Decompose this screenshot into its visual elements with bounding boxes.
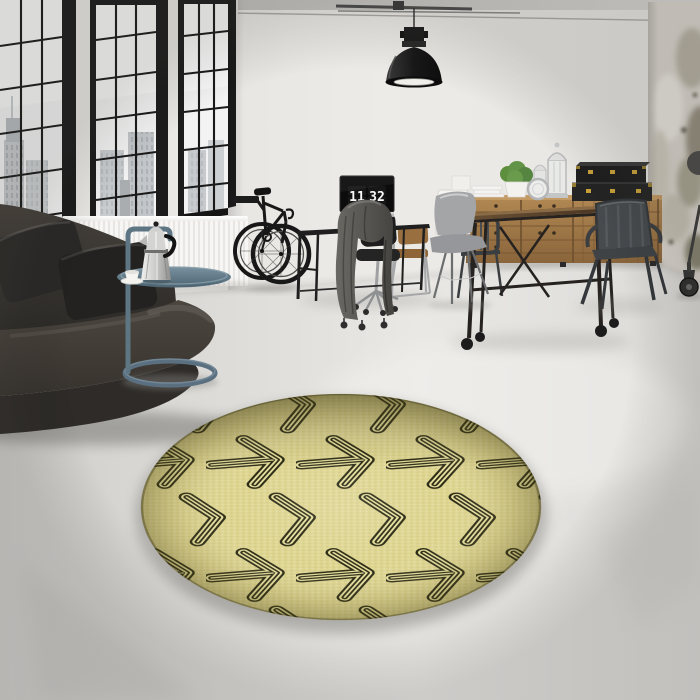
vignette [0, 0, 700, 700]
interior-scene-svg: 11 32 [0, 0, 700, 700]
interior-scene: 11 32 [0, 0, 700, 700]
